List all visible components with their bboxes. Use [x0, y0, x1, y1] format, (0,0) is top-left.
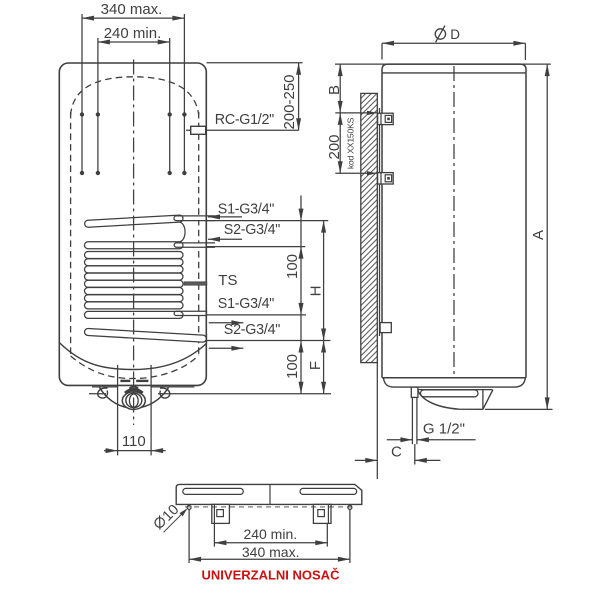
svg-text:100: 100 [284, 354, 301, 379]
svg-text:340 max.: 340 max. [101, 1, 163, 18]
svg-text:TS: TS [218, 272, 237, 289]
svg-text:110: 110 [122, 433, 146, 450]
svg-text:D: D [450, 27, 460, 42]
svg-text:10: 10 [160, 502, 183, 525]
svg-text:F: F [307, 361, 324, 370]
svg-text:S1-G3/4": S1-G3/4" [218, 202, 274, 218]
svg-text:S2-G3/4": S2-G3/4" [224, 322, 280, 338]
svg-text:C: C [391, 444, 402, 461]
svg-text:S1-G3/4": S1-G3/4" [218, 296, 274, 312]
svg-text:240 min.: 240 min. [243, 526, 297, 542]
svg-text:kod XX150KS: kod XX150KS [346, 117, 356, 169]
svg-text:G 1/2": G 1/2" [423, 421, 465, 438]
svg-text:200: 200 [326, 134, 343, 159]
svg-text:RC-G1/2": RC-G1/2" [215, 112, 274, 128]
svg-text:B: B [326, 85, 343, 95]
svg-text:240 min.: 240 min. [104, 25, 162, 42]
svg-text:100: 100 [284, 254, 301, 279]
svg-text:A: A [530, 230, 547, 240]
svg-text:340 max.: 340 max. [242, 544, 300, 560]
svg-text:H: H [308, 286, 325, 297]
svg-text:200-250: 200-250 [281, 74, 298, 129]
svg-text:S2-G3/4": S2-G3/4" [224, 222, 280, 238]
svg-text:UNIVERZALNI NOSAČ: UNIVERZALNI NOSAČ [202, 568, 341, 583]
